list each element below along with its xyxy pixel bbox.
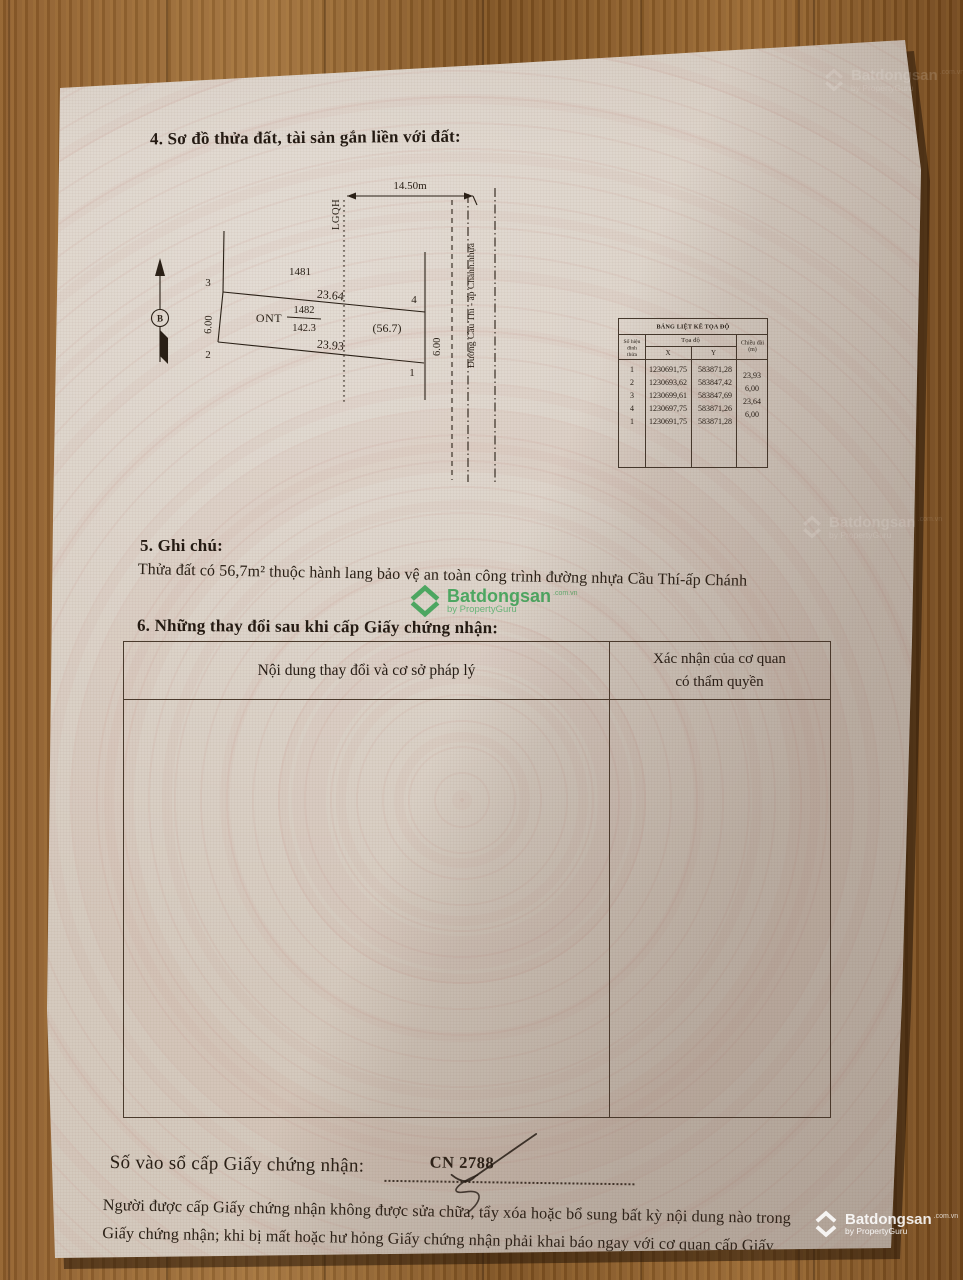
row-vertex: 4 [619,402,645,415]
row-vertex: 1 [619,415,645,428]
segment-length: 6,00 [736,408,768,421]
north-arrow-icon: B [152,258,169,364]
edge-left-length: 6.00 [203,315,215,334]
watermark-domain: .com.vn [934,1213,959,1220]
edge-bottom-length: 23.93 [316,337,344,354]
col-vertex-header: Số hiệu đỉnh thửa [622,338,643,357]
adjacent-parcel-label: 1481 [289,266,311,278]
photo-of-certificate-page: 4. Sơ đồ thửa đất, tài sản gắn liền với … [0,0,963,1280]
changes-col-right-line1: Xác nhận của cơ quan [653,648,786,671]
row-vertex: 3 [619,389,645,402]
road-name-label: Đường Cầu Thí - ấp Chánh.nhựa [466,242,477,368]
row-vertex: 1 [619,363,645,376]
row-x: 1230693,62 [645,376,691,389]
parcel-number: 1482 [294,305,315,316]
row-vertex: 2 [619,376,645,389]
row-y: 583847,42 [691,376,736,389]
segment-length: 23,93 [736,369,768,382]
road-width-dimension: 14.50m [347,180,477,205]
vertex-3-label: 3 [205,277,211,289]
parcel-boundary [218,231,425,400]
land-use-code: ONT [256,311,282,325]
section6-title: 6. Những thay đổi sau khi cấp Giấy chứng… [137,616,498,639]
segment-length: 6,00 [736,382,768,395]
bottom-notice: Người được cấp Giấy chứng nhận không đượ… [102,1196,878,1258]
changes-col-left-header: Nội dung thay đổi và cơ sở pháp lý [124,642,609,699]
changes-table: Nội dung thay đổi và cơ sở pháp lý Xác n… [123,641,831,1118]
changes-table-header: Nội dung thay đổi và cơ sở pháp lý Xác n… [124,642,830,700]
road-width-label: 14.50m [393,180,427,192]
changes-table-divider [609,642,610,1117]
vertex-2-label: 2 [205,349,211,361]
parcel-area: 142.3 [292,323,316,334]
cadastral-diagram: B 14.50m [140,172,512,485]
row-x: 1230697,75 [645,402,691,415]
row-x: 1230691,75 [645,415,691,428]
vertex-4-label: 4 [411,294,417,306]
fraction-bar [287,317,321,319]
segment-length: 23,64 [736,395,768,408]
edge-top-length: 23.64 [316,287,344,304]
row-y: 583871,28 [691,363,736,376]
row-y: 583871,26 [691,402,736,415]
row-y: 583847,69 [691,389,736,402]
col-y-header: Y [691,349,736,357]
planning-boundary-label: LGQH [331,199,342,230]
changes-col-right-line2: có thẩm quyền [675,671,763,694]
easement-area: (56.7) [373,321,402,335]
section5-title: 5. Ghi chú: [140,536,223,556]
col-length-header: Chiều dài (m) [738,339,766,353]
col-x-header: X [645,349,691,357]
row-x: 1230699,61 [645,389,691,402]
row-y: 583871,28 [691,415,736,428]
col-coords-header: Tọa độ [647,336,733,344]
section4-title: 4. Sơ đồ thửa đất, tài sản gắn liền với … [150,127,461,150]
row-x: 1230691,75 [645,363,691,376]
changes-col-right-header: Xác nhận của cơ quan có thẩm quyền [609,642,830,699]
coordinate-table: BẢNG LIỆT KÊ TỌA ĐỘ Số hiệu đỉnh thửa Tọ… [618,318,768,468]
north-label: B [157,314,163,324]
certificate-paper: 4. Sơ đồ thửa đất, tài sản gắn liền với … [0,0,963,1280]
coordinate-table-title: BẢNG LIỆT KÊ TỌA ĐỘ [628,320,758,333]
vertex-1-label: 1 [409,367,415,379]
edge-right-length: 6.00 [432,338,443,356]
registry-label: Số vào sổ cấp Giấy chứng nhận: [110,1152,365,1178]
